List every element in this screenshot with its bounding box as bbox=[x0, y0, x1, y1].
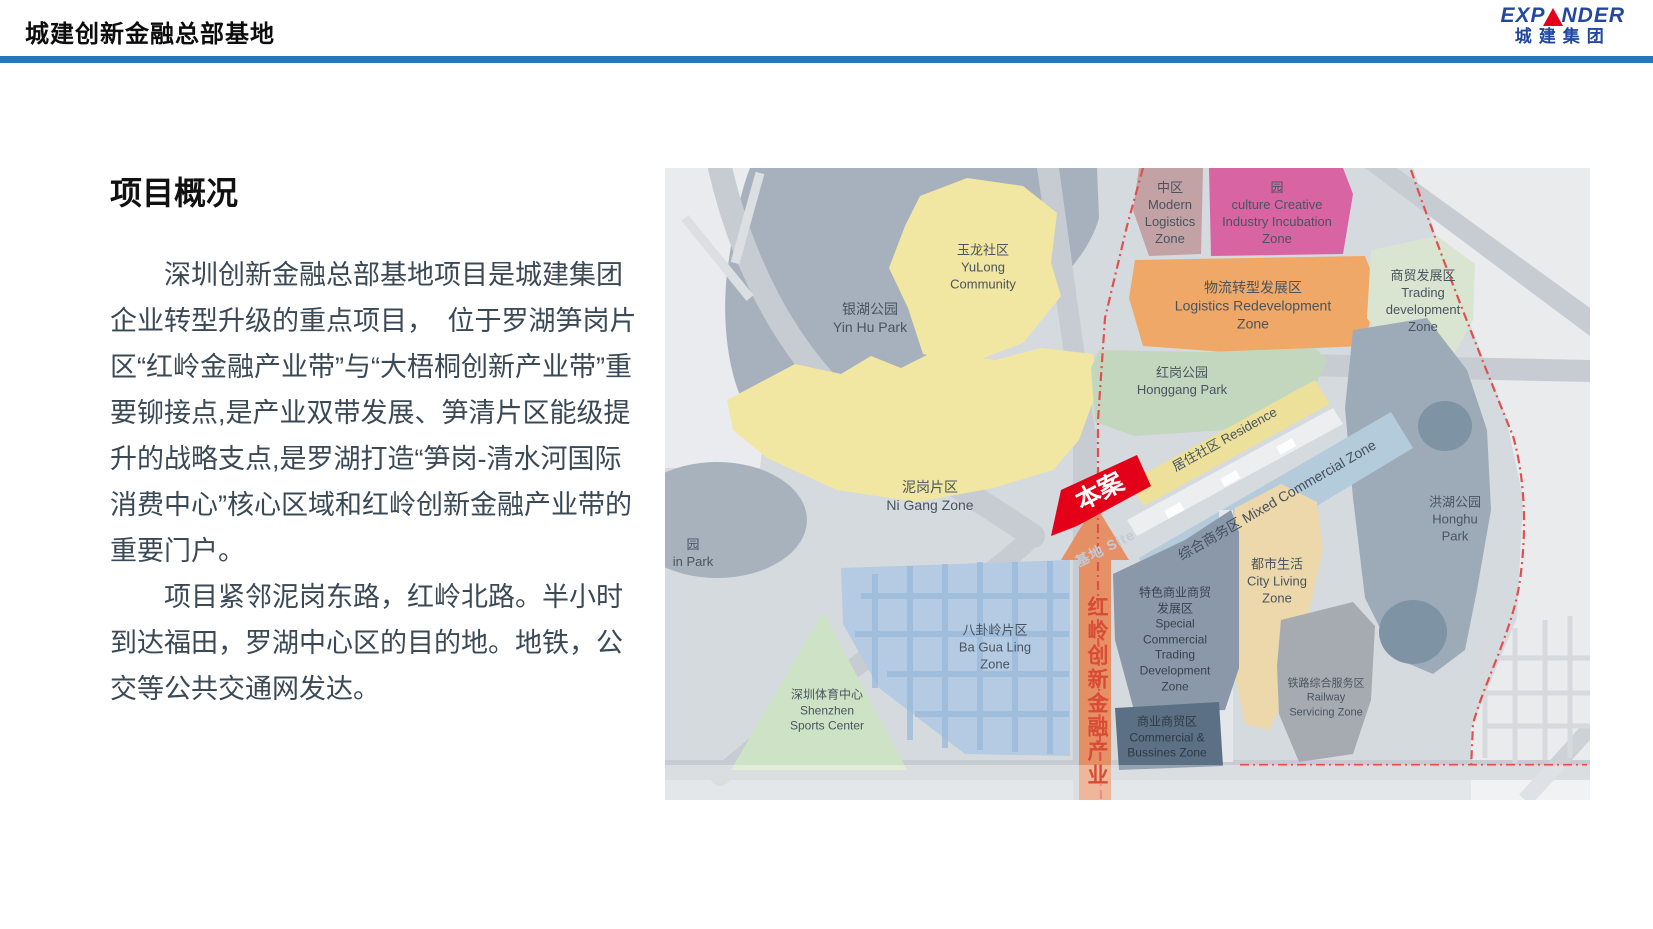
label-commercial-business: 商业商贸区 Commercial & Bussines Zone bbox=[1127, 715, 1206, 762]
label-railway: 铁路综合服务区 Railway Servicing Zone bbox=[1288, 677, 1365, 720]
paragraph-2: 项目紧邻泥岗东路，红岭北路。半小时到达福田，罗湖中心区的目的地。地铁，公交等公共… bbox=[110, 574, 644, 712]
label-yulong: 玉龙社区 YuLong Community bbox=[950, 243, 1016, 294]
label-city-living: 都市生活 City Living Zone bbox=[1247, 557, 1307, 608]
section-heading: 项目概况 bbox=[110, 168, 238, 214]
header-divider bbox=[0, 56, 1653, 63]
map-fade-strip bbox=[665, 765, 1590, 800]
honghu-lake-south bbox=[1379, 600, 1447, 664]
company-logo: EXPNDER 城建集团 bbox=[1500, 4, 1625, 47]
finance-belt-vertical-text: 红岭创新金融产业 bbox=[1081, 596, 1111, 800]
label-modern-logistics: 中区 Modern Logistics Zone bbox=[1145, 180, 1196, 248]
page-title: 城建创新金融总部基地 bbox=[25, 14, 275, 49]
district-map: 银湖公园 Yin Hu Park 玉龙社区 YuLong Community 泥… bbox=[665, 168, 1590, 800]
logo-text-left: EXP bbox=[1500, 4, 1545, 27]
label-bagualing: 八卦岭片区 Ba Gua Ling Zone bbox=[959, 623, 1031, 674]
label-honggang-park: 红岗公园 Honggang Park bbox=[1137, 365, 1227, 399]
slide: 城建创新金融总部基地 EXPNDER 城建集团 项目概况 深圳创新金融总部基地项… bbox=[0, 0, 1653, 929]
label-trading-dev: 商贸发展区 Trading development Zone bbox=[1386, 268, 1460, 336]
label-special-commercial: 特色商业商贸 发展区 Special Commercial Trading De… bbox=[1139, 585, 1211, 694]
project-description: 深圳创新金融总部基地项目是城建集团企业转型升级的重点项目， 位于罗湖笋岗片区“红… bbox=[110, 252, 644, 712]
logo-a-triangle-icon bbox=[1543, 8, 1563, 26]
label-logistics-redev: 物流转型发展区 Logistics Redevelopment Zone bbox=[1175, 279, 1331, 334]
label-left-park: 园 in Park bbox=[673, 537, 713, 571]
logo-company-name: 城建集团 bbox=[1500, 28, 1625, 47]
label-yinhu-park: 银湖公园 Yin Hu Park bbox=[833, 300, 907, 336]
logo-wordmark: EXPNDER bbox=[1500, 4, 1625, 27]
label-culture-creative: 园 culture Creative Industry Incubation Z… bbox=[1222, 180, 1332, 248]
logo-text-right: NDER bbox=[1561, 4, 1625, 27]
paragraph-1: 深圳创新金融总部基地项目是城建集团企业转型升级的重点项目， 位于罗湖笋岗片区“红… bbox=[110, 252, 644, 574]
label-sports-center: 深圳体育中心 Shenzhen Sports Center bbox=[790, 688, 864, 735]
honghu-lake-north bbox=[1418, 401, 1472, 451]
label-nigang: 泥岗片区 Ni Gang Zone bbox=[886, 478, 973, 514]
label-honghu-park: 洪湖公园 Honghu Park bbox=[1429, 495, 1481, 546]
